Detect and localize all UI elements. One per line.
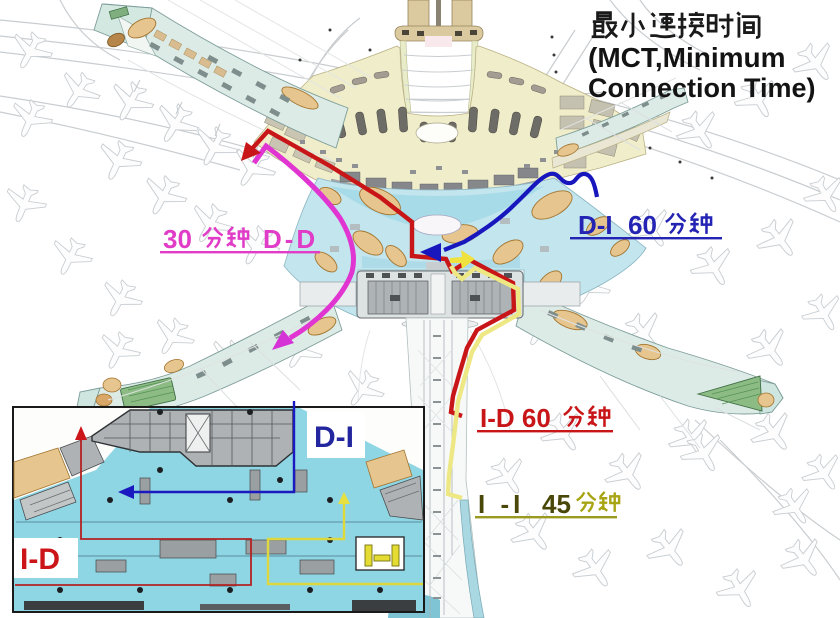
svg-text:Connection Time): Connection Time) (588, 73, 816, 103)
svg-text:I -I: I -I (478, 489, 524, 519)
svg-text:D-I: D-I (578, 210, 613, 240)
svg-text:D-D: D-D (263, 224, 318, 254)
svg-text:30: 30 (163, 224, 192, 254)
svg-text:I-D 60: I-D 60 (480, 403, 551, 433)
svg-text:D-I: D-I (314, 421, 354, 454)
svg-text:(MCT,Minimum: (MCT,Minimum (588, 42, 786, 73)
svg-text:45: 45 (542, 489, 571, 519)
svg-text:60: 60 (628, 210, 657, 240)
svg-text:I-D: I-D (20, 543, 60, 576)
